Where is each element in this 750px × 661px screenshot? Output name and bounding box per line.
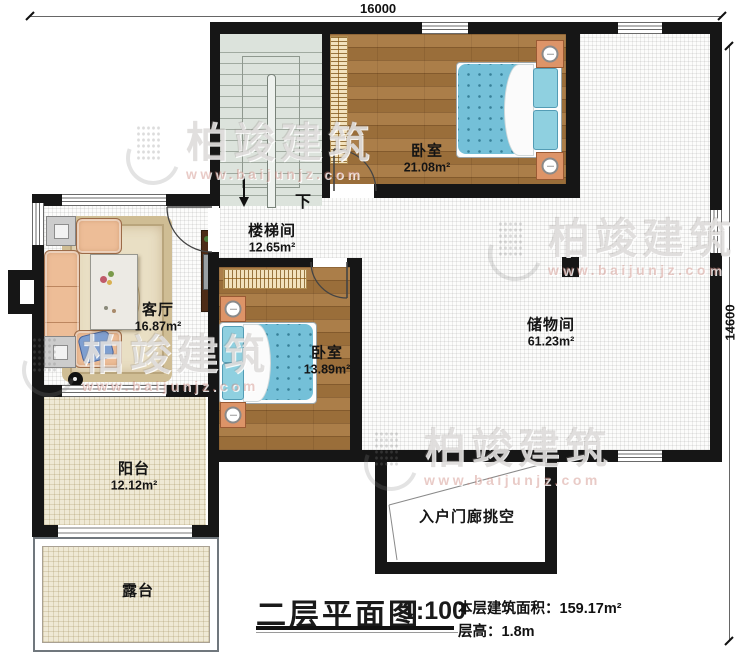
bedroom1-wardrobe [330, 36, 348, 164]
stairwell-area: 12.65m² [248, 241, 296, 255]
window-right-storage [710, 210, 722, 253]
balcony-area: 12.12m² [111, 479, 158, 493]
plan-scale: 1:100 [402, 597, 466, 626]
window-bottom-storage [618, 450, 662, 462]
table-flower-red [100, 276, 107, 283]
bed2-blanket [243, 324, 271, 402]
wall-bedroom2-right [350, 258, 362, 450]
floor-plan-page: 16000 14600 [0, 0, 750, 661]
wall-porch-left [375, 462, 387, 574]
label-bedroom2: 卧室 13.89m² [304, 342, 351, 377]
stair-down-label: 下 [295, 188, 311, 212]
table-flower-green [108, 271, 114, 277]
storage-area: 61.23m² [527, 335, 575, 349]
balcony-name: 阳台 [111, 458, 158, 479]
floor-area-row: 本层建筑面积：159.17m² [458, 597, 622, 618]
stairwell-name: 楼梯间 [248, 220, 296, 241]
window-left-living [32, 203, 44, 245]
label-living-room: 客厅 16.87m² [135, 299, 182, 334]
right-dimension-line [729, 46, 730, 641]
terrace-name: 露台 [122, 580, 154, 601]
bed1-nightstand-top [536, 40, 564, 68]
watermark-url: www.baijunjz.com [424, 472, 612, 488]
bed1-nightstand-bottom [536, 152, 564, 180]
title-underline-thin [256, 632, 458, 633]
bed2-nightstand-bottom [220, 402, 246, 428]
living-room-name: 客厅 [135, 299, 182, 320]
label-terrace: 露台 [122, 580, 154, 601]
wall-porch-right [545, 462, 557, 574]
bed1-pillow-2 [533, 110, 558, 150]
storage-name: 储物间 [527, 314, 575, 335]
wall-left-exterior [32, 194, 44, 537]
floor-area-value: 159.17m² [560, 601, 622, 617]
bedroom2-area: 13.89m² [304, 363, 351, 377]
wall-balcony-bottom-right [192, 525, 218, 537]
bed2-pillow-2 [222, 363, 244, 400]
door-opening-bedroom2 [313, 258, 347, 267]
bed2-nightstand-top [220, 296, 246, 322]
wall-bedroom1-left [322, 34, 330, 184]
table-deco-dot1 [104, 306, 108, 310]
wall-left-bump-notch [20, 280, 34, 304]
bedroom2-wardrobe [223, 269, 307, 289]
floor-area-label: 本层建筑面积： [458, 601, 560, 617]
door-opening-living [208, 206, 219, 252]
wall-stairwell-left [210, 22, 220, 208]
window-balcony-top [62, 385, 166, 397]
porch-void-line-2 [389, 505, 397, 560]
floor-height-value: 1.8m [502, 624, 535, 640]
wall-balcony-bottom-left [32, 525, 58, 537]
armchair-top [76, 218, 122, 254]
label-stairwell: 楼梯间 12.65m² [248, 220, 296, 255]
bedroom1-name: 卧室 [404, 140, 451, 161]
bed1-blanket [504, 64, 534, 156]
top-dimension-value: 16000 [360, 1, 396, 16]
window-top-bedroom1 [422, 22, 468, 34]
coffee-table [90, 254, 138, 330]
living-room-area: 16.87m² [135, 320, 182, 334]
storage-column [562, 257, 579, 277]
table-flower-yellow [107, 280, 112, 285]
title-underline [256, 626, 454, 630]
bed2-pillow-1 [222, 326, 244, 363]
floor-height-label: 层高： [458, 624, 502, 640]
door-opening-bedroom1 [330, 184, 374, 198]
porch-void-line-1 [389, 464, 543, 505]
wall-bedroom1-right [566, 34, 580, 198]
wall-porch-bottom [375, 562, 557, 574]
side-table-top [46, 216, 76, 246]
side-table-bottom [44, 336, 76, 368]
watermark-logo-icon [126, 123, 178, 181]
label-bedroom1: 卧室 21.08m² [404, 140, 451, 175]
window-top-storage [618, 22, 662, 34]
label-storage: 储物间 61.23m² [527, 314, 575, 349]
bedroom1-area: 21.08m² [404, 161, 451, 175]
porch-name: 入户门廊挑空 [419, 506, 515, 527]
floor-height-row: 层高：1.8m [458, 620, 535, 641]
right-dimension-value: 14600 [723, 304, 738, 340]
label-porch: 入户门廊挑空 [419, 506, 515, 527]
label-balcony: 阳台 12.12m² [111, 458, 158, 493]
top-dimension-line [30, 16, 722, 17]
bedroom2-name: 卧室 [304, 342, 351, 363]
stair-handrail [267, 74, 276, 208]
table-deco-dot2 [112, 309, 116, 313]
bed1-pillow-1 [533, 68, 558, 108]
window-living-top [62, 194, 166, 206]
